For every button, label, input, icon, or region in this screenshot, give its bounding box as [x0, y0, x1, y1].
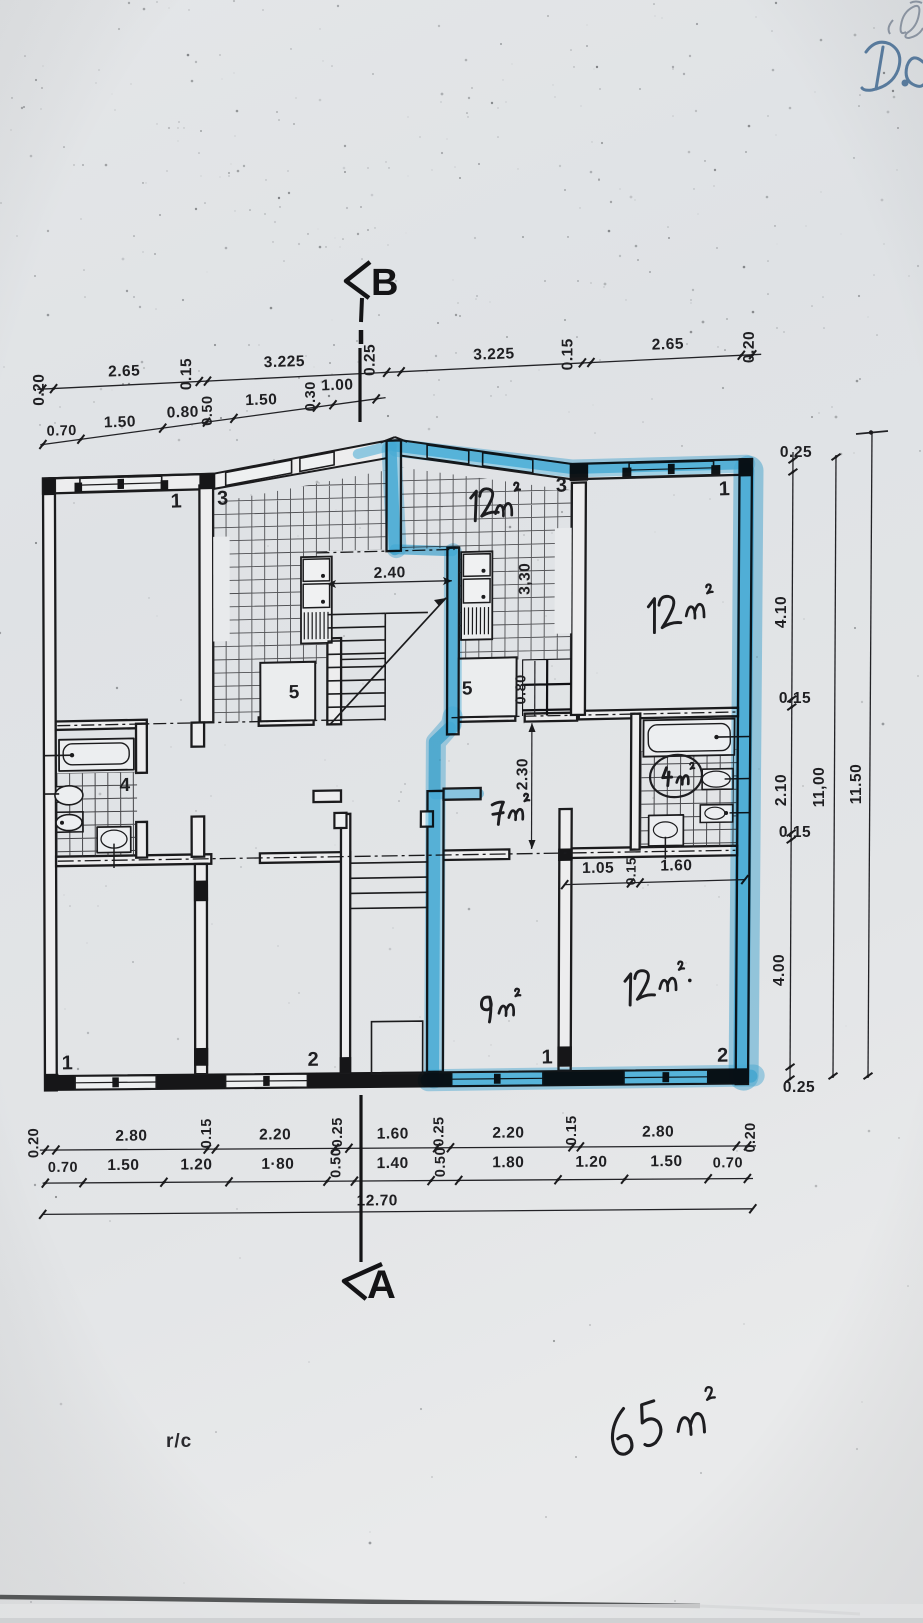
- svg-text:0.70: 0.70: [48, 1160, 78, 1176]
- svg-text:11.50: 11.50: [848, 764, 865, 804]
- svg-text:4.00: 4.00: [771, 954, 788, 986]
- svg-text:r/c: r/c: [166, 1431, 192, 1452]
- svg-text:0.15: 0.15: [564, 1115, 580, 1145]
- svg-text:2.65: 2.65: [652, 336, 685, 354]
- svg-text:0.50: 0.50: [200, 395, 216, 425]
- svg-text:0.25: 0.25: [780, 444, 812, 461]
- svg-text:0.80: 0.80: [513, 674, 529, 704]
- svg-text:0.80: 0.80: [166, 404, 199, 422]
- svg-text:4.10: 4.10: [773, 596, 790, 628]
- svg-text:1.20: 1.20: [180, 1156, 212, 1173]
- svg-text:0.25: 0.25: [431, 1116, 447, 1146]
- svg-text:1: 1: [718, 478, 730, 500]
- svg-text:0.15: 0.15: [779, 690, 811, 707]
- svg-text:B: B: [371, 262, 398, 304]
- svg-text:1.05: 1.05: [582, 860, 614, 878]
- svg-text:2.80: 2.80: [115, 1127, 147, 1144]
- svg-text:2.30: 2.30: [514, 758, 531, 790]
- svg-text:A: A: [367, 1263, 396, 1307]
- svg-text:11,00: 11,00: [811, 767, 828, 807]
- svg-text:1.60: 1.60: [660, 857, 692, 875]
- svg-text:0.15: 0.15: [199, 1118, 215, 1148]
- svg-text:1: 1: [170, 490, 182, 512]
- svg-text:12.70: 12.70: [357, 1192, 398, 1209]
- svg-text:1.50: 1.50: [107, 1157, 139, 1174]
- svg-text:0.15: 0.15: [559, 338, 576, 370]
- svg-text:0.25: 0.25: [330, 1117, 346, 1147]
- svg-text:1.60: 1.60: [377, 1125, 409, 1142]
- svg-text:1·80: 1·80: [261, 1156, 294, 1173]
- svg-text:5: 5: [462, 678, 474, 699]
- svg-text:0.50: 0.50: [329, 1148, 345, 1178]
- svg-text:0.15: 0.15: [624, 857, 639, 885]
- svg-text:0.70: 0.70: [46, 423, 77, 440]
- svg-text:1.50: 1.50: [104, 413, 137, 431]
- svg-text:1.40: 1.40: [377, 1155, 409, 1172]
- svg-text:2.40: 2.40: [373, 564, 406, 582]
- svg-text:2.80: 2.80: [642, 1123, 674, 1140]
- svg-text:0.20: 0.20: [743, 1122, 759, 1152]
- svg-text:0.20: 0.20: [31, 374, 48, 406]
- svg-text:2: 2: [307, 1049, 319, 1071]
- svg-text:3,30: 3,30: [517, 563, 534, 595]
- svg-text:2.20: 2.20: [259, 1126, 291, 1143]
- svg-text:3: 3: [556, 474, 568, 496]
- svg-text:0.25: 0.25: [362, 344, 379, 376]
- svg-text:0.30: 0.30: [303, 381, 319, 411]
- svg-text:0.25: 0.25: [783, 1079, 815, 1096]
- svg-text:1: 1: [541, 1046, 553, 1068]
- svg-text:2.20: 2.20: [492, 1124, 524, 1141]
- svg-text:0.50: 0.50: [433, 1147, 449, 1177]
- svg-text:1.20: 1.20: [575, 1154, 607, 1171]
- svg-text:1: 1: [62, 1052, 74, 1074]
- svg-text:0.20: 0.20: [26, 1128, 42, 1158]
- svg-text:0.20: 0.20: [741, 331, 758, 363]
- svg-text:1.50: 1.50: [245, 391, 278, 409]
- svg-text:5: 5: [289, 682, 301, 703]
- svg-text:0.15: 0.15: [178, 358, 195, 390]
- svg-text:1.00: 1.00: [321, 376, 354, 394]
- svg-text:2.10: 2.10: [773, 774, 790, 806]
- svg-text:1.50: 1.50: [650, 1153, 682, 1170]
- svg-text:1.80: 1.80: [492, 1154, 524, 1171]
- svg-text:0.70: 0.70: [713, 1155, 743, 1171]
- svg-text:3.225: 3.225: [473, 345, 515, 363]
- svg-text:3: 3: [217, 487, 229, 509]
- svg-text:4: 4: [119, 775, 130, 796]
- svg-text:2: 2: [717, 1045, 729, 1067]
- svg-text:0.15: 0.15: [779, 824, 811, 841]
- svg-text:3.225: 3.225: [263, 353, 305, 371]
- svg-text:2.65: 2.65: [108, 363, 141, 381]
